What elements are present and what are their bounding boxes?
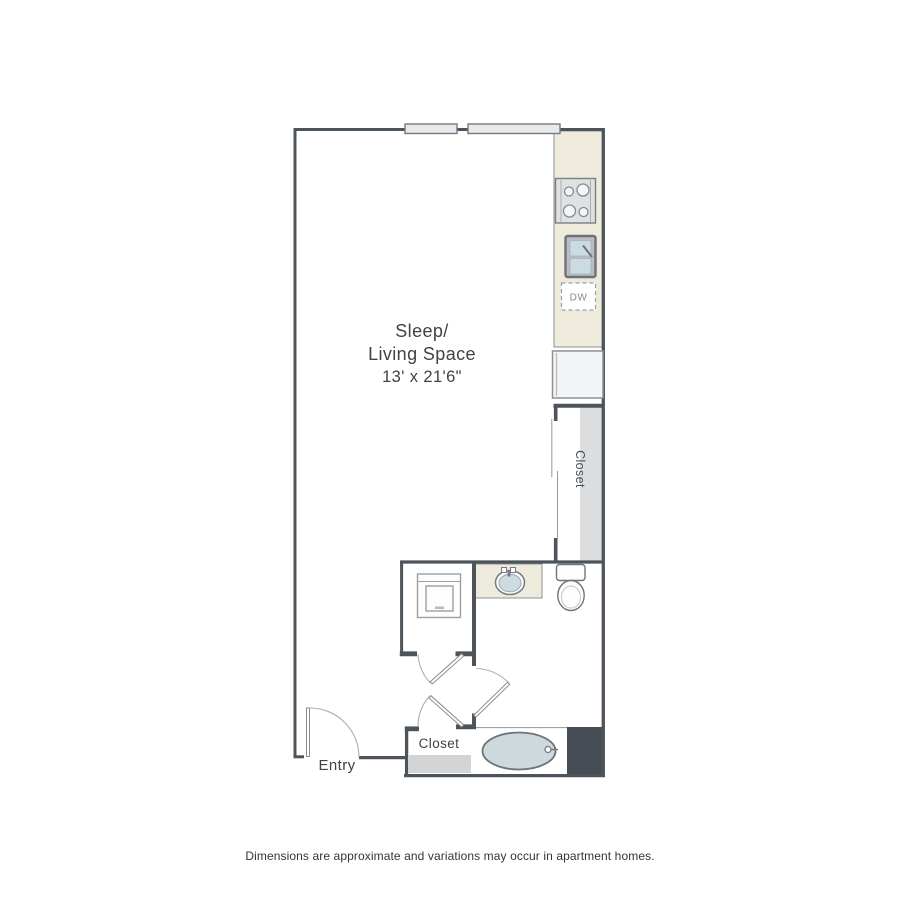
bathroom-door: [475, 669, 510, 717]
entry-closet-door: [418, 696, 463, 727]
laundry-closet-door: [418, 654, 463, 683]
floorplan-canvas: DW Sleep/ Living Space 13' x 21'6" Entry: [0, 0, 900, 900]
dishwasher-label: DW: [570, 293, 588, 304]
wall-block: [567, 727, 604, 776]
kitchen-sink-icon: [566, 236, 596, 277]
toilet-icon: [557, 565, 586, 611]
entry-door: [308, 708, 359, 758]
dishwasher: DW: [562, 283, 596, 310]
washer-dryer-icon: [418, 574, 461, 618]
washer-dryer-handle: [435, 607, 444, 610]
living-label-dimensions: 13' x 21'6": [382, 368, 462, 386]
room-label-living: Sleep/ Living Space 13' x 21'6": [368, 321, 476, 386]
closet-bottom-shading: [409, 755, 471, 773]
bathtub-icon: [476, 728, 567, 770]
windows: [405, 124, 560, 134]
disclaimer-text: Dimensions are approximate and variation…: [0, 849, 900, 863]
stove-icon: [556, 179, 596, 224]
living-label-line2: Living Space: [368, 344, 476, 364]
tub-drain: [545, 747, 551, 753]
refrigerator-icon: [553, 351, 604, 398]
vanity-faucet: [508, 571, 511, 577]
closet-right-label: Closet: [573, 450, 587, 488]
entry-label: Entry: [318, 757, 355, 774]
closet-bottom-label: Closet: [419, 736, 460, 751]
closet-right-sliding-doors: [552, 419, 558, 541]
living-label-line1: Sleep/: [395, 321, 448, 341]
window-icon: [405, 124, 457, 134]
window-icon: [468, 124, 560, 134]
